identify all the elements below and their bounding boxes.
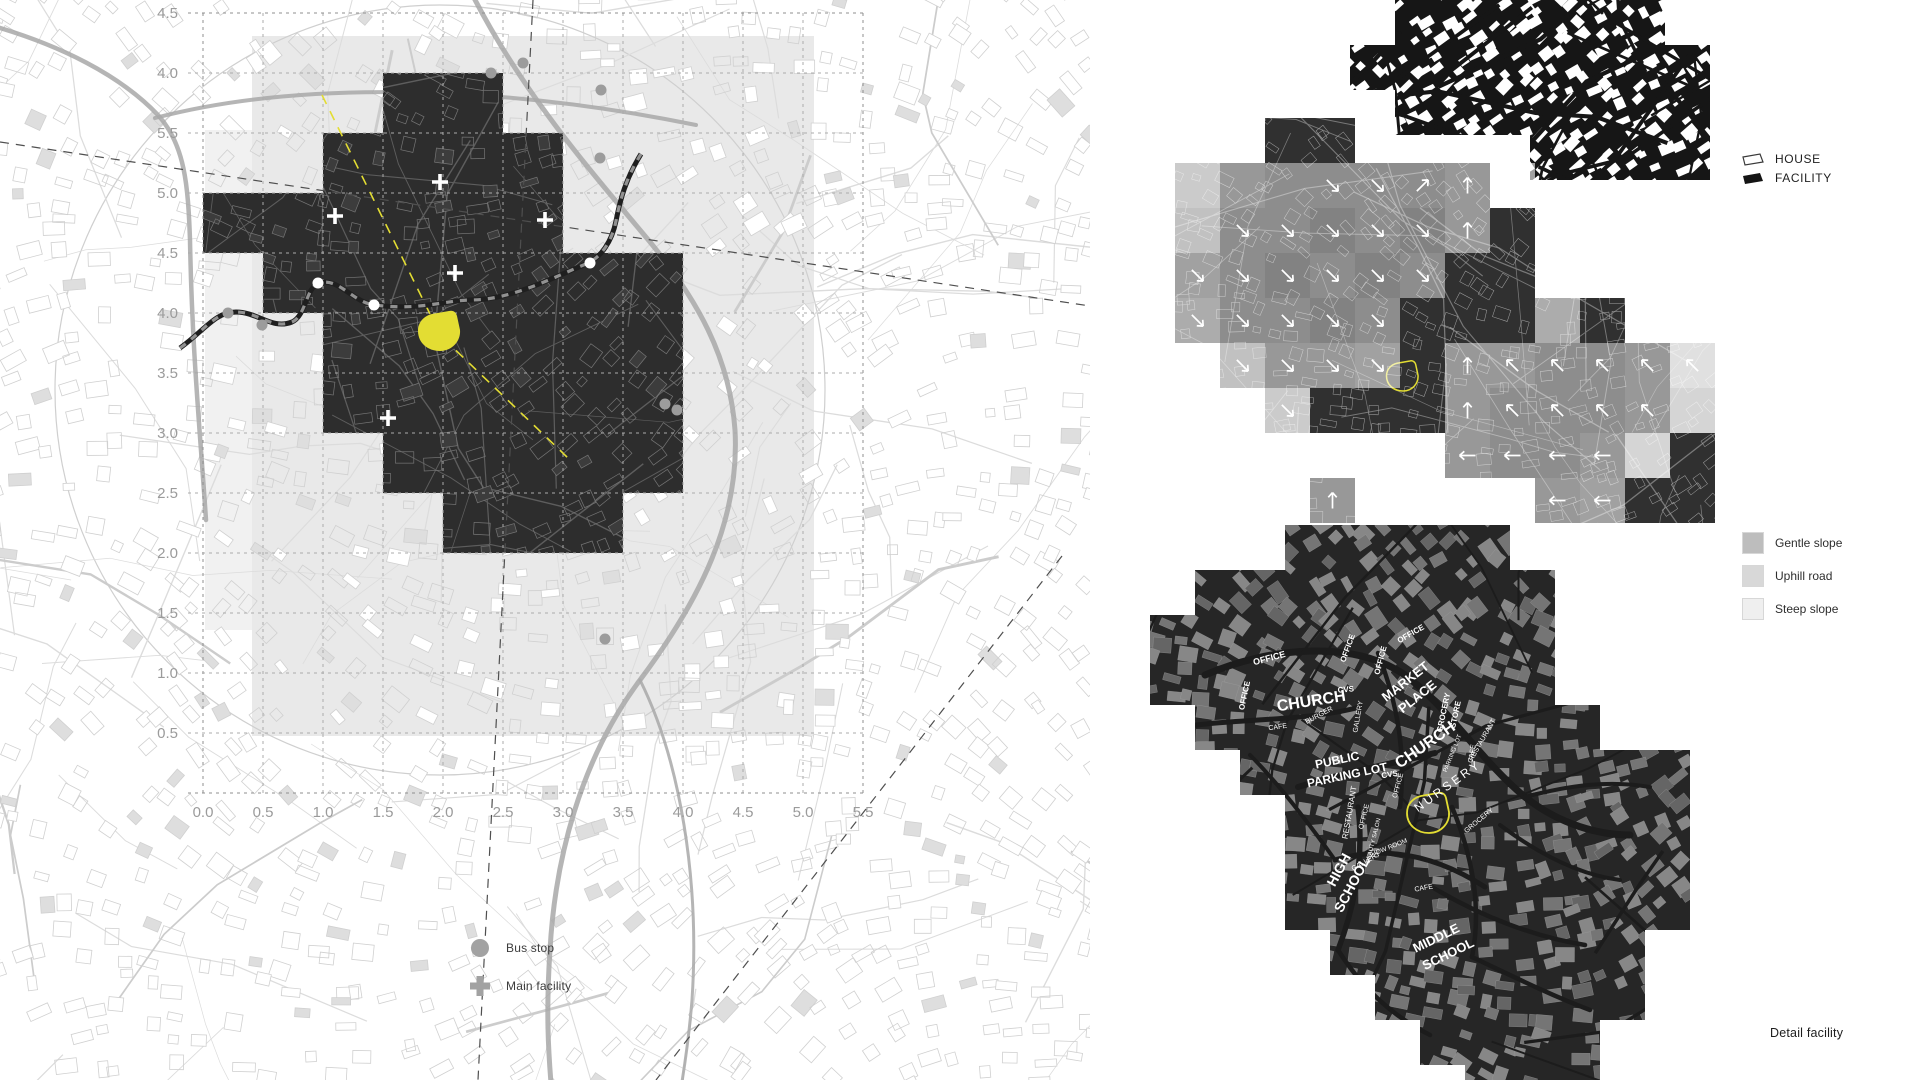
bus-stop-marker-active	[369, 300, 380, 311]
y-axis-label: 2.5	[157, 485, 178, 502]
x-axis-label: 1.5	[373, 804, 394, 821]
map-legend: Bus stop Main facility	[468, 936, 571, 1012]
bus-stop-marker	[660, 399, 671, 410]
street-label: CVS	[1337, 684, 1355, 694]
bus-stop-marker	[257, 320, 268, 331]
slope-legend: Gentle slopeUphill roadSteep slope	[1742, 532, 1842, 631]
bus-stop-marker	[595, 153, 606, 164]
y-axis-label: 4.0	[157, 305, 178, 322]
bus-stop-marker	[672, 405, 683, 416]
x-axis-label: 0.5	[253, 804, 274, 821]
x-axis-label: 0.0	[193, 804, 214, 821]
slope-legend-item: Uphill road	[1742, 565, 1842, 587]
detail-facility-caption: Detail facility	[1770, 1026, 1843, 1040]
y-axis-label: 5.0	[157, 185, 178, 202]
bus-stop-label: Bus stop	[506, 941, 554, 955]
main-facility-icon	[468, 974, 492, 998]
slope-legend-label: Steep slope	[1775, 602, 1838, 616]
facility-label: FACILITY	[1775, 171, 1832, 185]
slope-legend-item: Gentle slope	[1742, 532, 1842, 554]
main-facility-label: Main facility	[506, 979, 571, 993]
slope-swatch-icon	[1742, 598, 1764, 620]
y-axis-label: 4.5	[157, 245, 178, 262]
x-axis-label: 3.0	[553, 804, 574, 821]
legend-bus-stop: Bus stop	[468, 936, 571, 960]
slope-analysis-map	[1175, 118, 1735, 530]
site-analysis-map: 4.54.05.55.04.54.03.53.02.52.01.51.00.50…	[0, 0, 1090, 1080]
house-swatch-icon	[1740, 151, 1766, 167]
x-axis-label: 3.5	[613, 804, 634, 821]
bus-stop-marker	[486, 68, 497, 79]
slope-overlay-cells	[1175, 163, 1715, 523]
house-label: HOUSE	[1775, 152, 1821, 166]
bus-stop-marker-active	[585, 258, 596, 269]
y-axis-label: 1.5	[157, 605, 178, 622]
y-axis-label: 1.0	[157, 665, 178, 682]
house-facility-legend: HOUSE FACILITY	[1740, 150, 1832, 188]
x-axis-label: 5.0	[793, 804, 814, 821]
x-axis-label: 4.0	[673, 804, 694, 821]
bus-stop-marker	[518, 58, 529, 69]
x-axis-label: 2.0	[433, 804, 454, 821]
legend-house: HOUSE	[1740, 150, 1832, 167]
x-axis-label: 2.5	[493, 804, 514, 821]
bus-stop-marker-active	[313, 278, 324, 289]
bus-stop-icon	[468, 936, 492, 960]
slope-swatch-icon	[1742, 532, 1764, 554]
legend-main-facility: Main facility	[468, 974, 571, 998]
x-axis-label: 4.5	[733, 804, 754, 821]
x-axis-label: 1.0	[313, 804, 334, 821]
bus-stop-marker	[596, 85, 607, 96]
y-axis-label: 3.0	[157, 425, 178, 442]
y-axis-label: 4.5	[157, 5, 178, 22]
bus-stop-marker	[600, 634, 611, 645]
y-axis-label: 2.0	[157, 545, 178, 562]
y-axis-label: 5.5	[157, 125, 178, 142]
facility-swatch-icon	[1740, 170, 1766, 186]
bus-stop-marker	[223, 308, 234, 319]
slope-swatch-icon	[1742, 565, 1764, 587]
slope-legend-label: Uphill road	[1775, 569, 1832, 583]
y-axis-label: 3.5	[157, 365, 178, 382]
y-axis-label: 0.5	[157, 725, 178, 742]
legend-facility: FACILITY	[1740, 169, 1832, 186]
facility-detail-map: OFFICEOFFICEOFFICEOFFICEOFFICECHURCHCVSM…	[1150, 525, 1710, 1080]
slope-legend-label: Gentle slope	[1775, 536, 1842, 550]
slope-legend-item: Steep slope	[1742, 598, 1842, 620]
y-axis-label: 4.0	[157, 65, 178, 82]
